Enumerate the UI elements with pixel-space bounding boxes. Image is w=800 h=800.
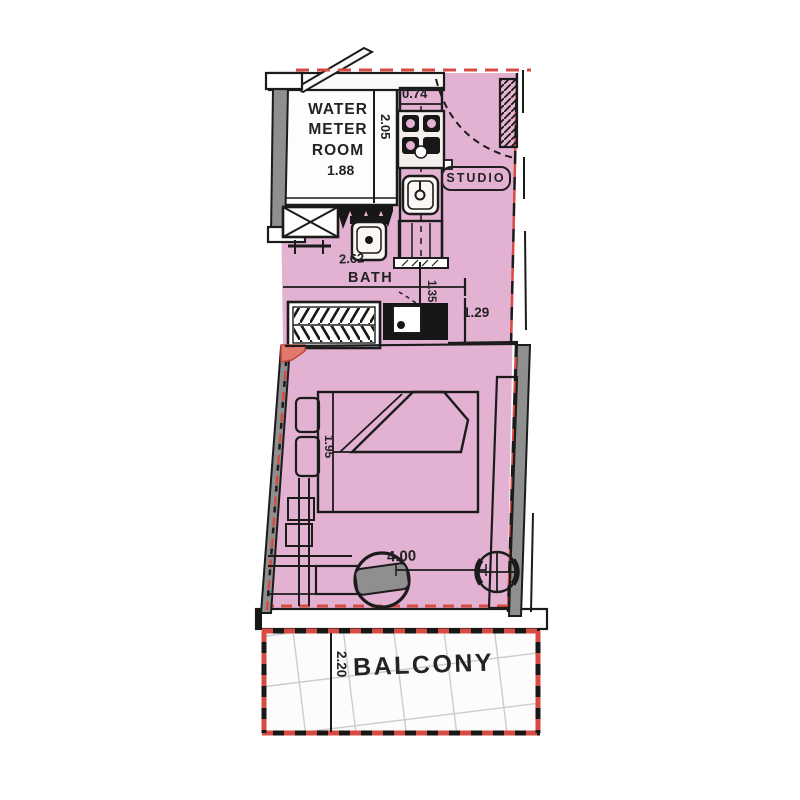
balcony-label: BALCONY <box>352 647 494 684</box>
bath-width-dim: 2.62 <box>339 250 365 268</box>
toilet-unit <box>383 303 448 340</box>
room-width-dim: 4.00 <box>387 546 417 567</box>
door-jamb-hatch <box>500 79 517 147</box>
shower-mat <box>288 302 380 348</box>
stove <box>398 111 452 169</box>
balcony-depth-dim: 2.20 <box>332 651 350 677</box>
balcony-wall-band <box>256 606 547 629</box>
bath-label: BATH <box>348 269 393 288</box>
water-meter-depth-dim: 2.05 <box>376 114 393 139</box>
wall-niche-dim: 1.29 <box>463 304 489 322</box>
bath-passage-dim: 1.35 <box>423 280 438 302</box>
water-meter-room-label: WATER METER ROOM <box>294 100 382 161</box>
shaft-box <box>283 207 338 237</box>
side-table <box>475 552 519 592</box>
studio-label: STUDIO <box>441 166 511 191</box>
kitchen-entry-dim: 0.74 <box>402 86 427 103</box>
water-meter-width-dim: 1.88 <box>327 161 354 179</box>
kitchen-sink <box>403 176 438 214</box>
bed-length-dim: 1.95 <box>320 435 336 458</box>
floor-plan-canvas: WATER METER ROOM 1.88 2.05 0.74 STUDIO 2… <box>0 0 800 800</box>
